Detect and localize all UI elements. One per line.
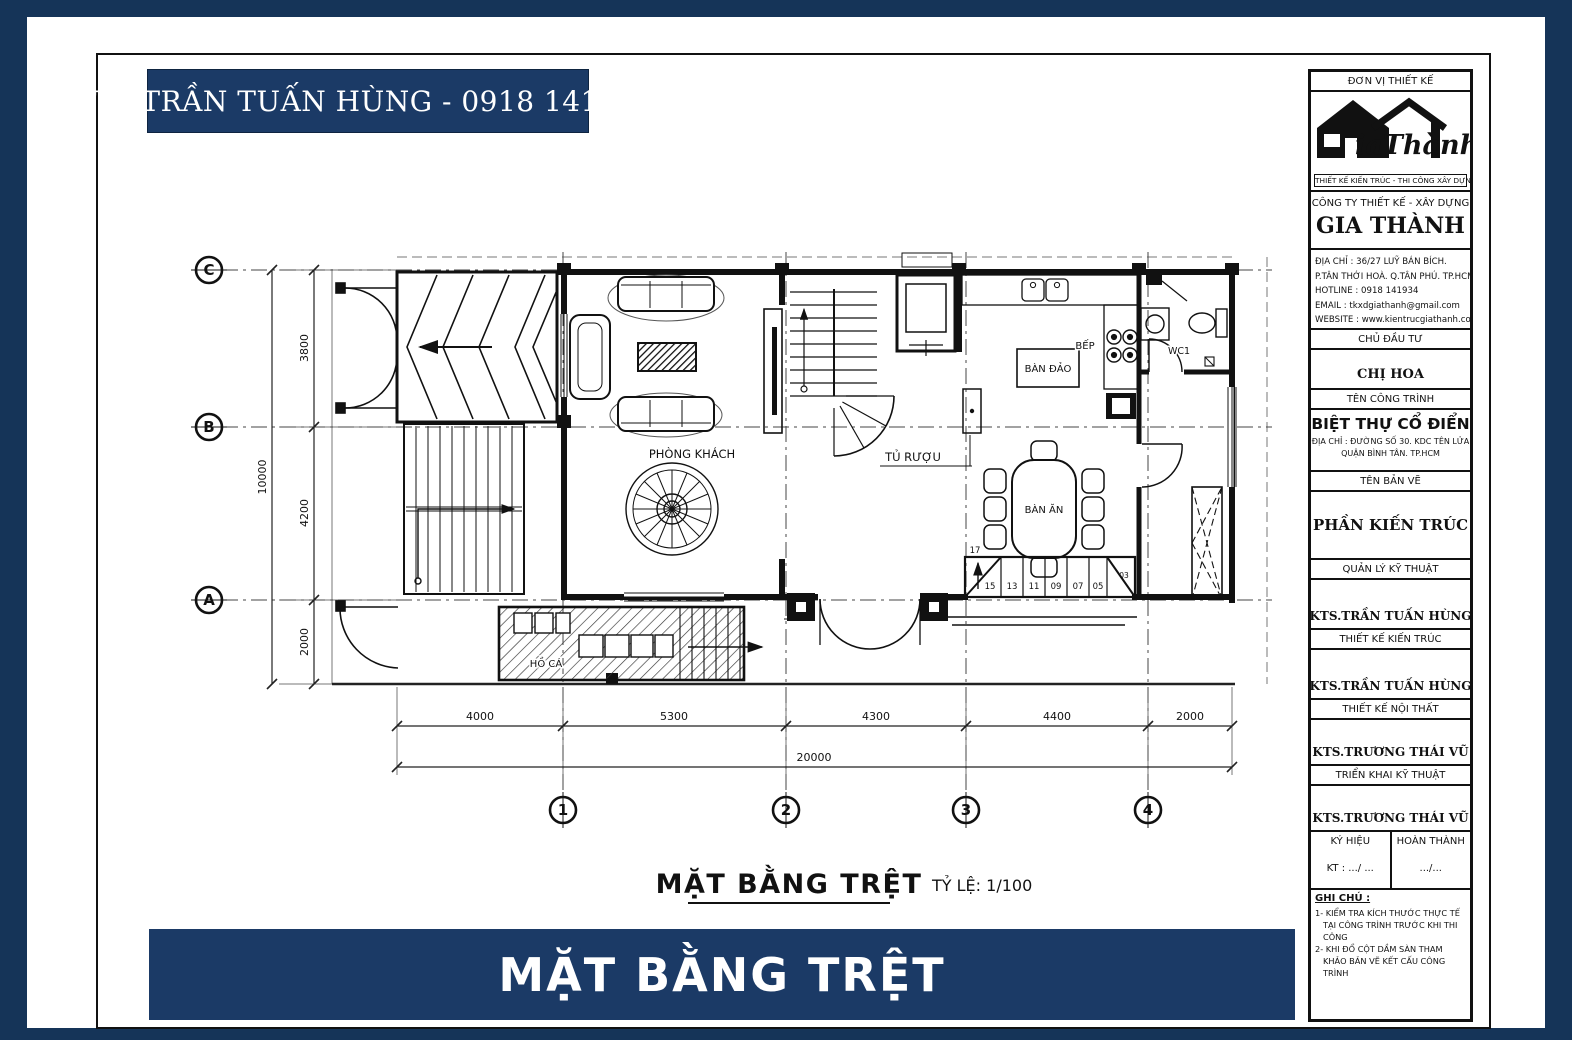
svg-text:B: B: [203, 418, 214, 436]
grid-lines: [222, 252, 1272, 797]
svg-text:1: 1: [558, 801, 568, 819]
contact-hotline: HOTLINE : 0918 141934: [1315, 284, 1466, 299]
label-bep: BẾP: [1075, 338, 1094, 352]
dim-4400: 4400: [1043, 710, 1071, 723]
owner-header: CHỦ ĐẦU TƯ: [1311, 330, 1470, 350]
plan-title: MẶT BẰNG TRỆT: [656, 864, 923, 900]
label-ban-an: BÀN ĂN: [1025, 503, 1064, 516]
architect-banner: KTS.TRẦN TUẤN HÙNG - 0918 1419 34: [147, 69, 589, 133]
garage-doors: [336, 283, 397, 413]
svg-text:A: A: [203, 591, 215, 609]
dim-4000: 4000: [466, 710, 494, 723]
yard-door: [336, 601, 398, 668]
drawing-sheet: KTS.TRẦN TUẤN HÙNG - 0918 1419 34: [27, 17, 1545, 1028]
dim-4200: 4200: [298, 499, 311, 527]
project-address-2: QUẬN BÌNH TÂN. TP.HCM: [1311, 448, 1470, 460]
svg-text:3: 3: [961, 801, 971, 819]
svg-text:09: 09: [1051, 582, 1062, 592]
sign-symbol-header: KÝ HIỆU: [1330, 836, 1370, 847]
company-logo: iaThành THIẾT KẾ KIẾN TRÚC - THI CÔNG XÂ…: [1311, 92, 1470, 192]
wc1: [1141, 274, 1227, 372]
svg-text:03: 03: [1119, 571, 1129, 580]
living-room: [570, 275, 782, 555]
gia-thanh-logo-icon: iaThành: [1311, 92, 1470, 162]
svg-text:15: 15: [985, 582, 996, 592]
plan-scale: TỶ LỆ: 1/100: [931, 875, 1032, 895]
logo-tagline: THIẾT KẾ KIẾN TRÚC - THI CÔNG XÂY DỰNG: [1314, 174, 1467, 187]
label-phong-khach: PHÒNG KHÁCH: [649, 446, 735, 461]
side-stair: [404, 424, 524, 594]
company-contact: ĐỊA CHỈ : 36/27 LUỸ BÁN BÍCH. P.TÂN THỚI…: [1311, 250, 1470, 330]
dim-10000: 10000: [256, 460, 269, 495]
project-address-1: ĐỊA CHỈ : ĐƯỜNG SỐ 30. KDC TÊN LỬA: [1311, 436, 1470, 448]
note-1: 1- KIỂM TRA KÍCH THƯỚC THỰC TẾ TẠI CÔNG …: [1315, 907, 1466, 943]
sheet-name: PHẦN KIẾN TRÚC: [1311, 492, 1470, 560]
titleblock-unit-header: ĐƠN VỊ THIẾT KẾ: [1311, 72, 1470, 92]
svg-text:2: 2: [781, 801, 791, 819]
contact-email: EMAIL : tkxdgiathanh@gmail.com: [1315, 299, 1466, 314]
garage-ramp: [397, 272, 557, 422]
svg-text:05: 05: [1093, 582, 1104, 592]
svg-text:11: 11: [1029, 582, 1040, 592]
svg-text:07: 07: [1073, 582, 1084, 592]
signature-row: KÝ HIỆU KT : .../ ... HOÀN THÀNH .../...: [1311, 832, 1470, 890]
floor-plan: 3800 4200 2000 10000 4000 5300 4300 4400…: [132, 157, 1297, 932]
elevator: [897, 253, 955, 356]
svg-text:13: 13: [1007, 582, 1018, 592]
role-name-technical-dev: KTS.TRƯƠNG THÁI VŨ: [1311, 786, 1470, 832]
architect-banner-text: KTS.TRẦN TUẤN HÙNG - 0918 1419 34: [73, 85, 664, 118]
role-header-architect: THIẾT KẾ KIẾN TRÚC: [1311, 630, 1470, 650]
label-wc1: WC1: [1168, 346, 1190, 357]
side-planter: [1192, 487, 1222, 599]
title-block: ĐƠN VỊ THIẾT KẾ iaThành THIẾT KẾ KIẾN TR…: [1308, 69, 1473, 1022]
notes-header: GHI CHÚ :: [1315, 893, 1466, 905]
sign-symbol-value: KT : .../ ...: [1327, 863, 1374, 874]
contact-website: WEBSITE : www.kientrucgiathanh.com: [1315, 313, 1466, 328]
floor-medallion: [626, 463, 718, 555]
company-section: CÔNG TY THIẾT KẾ - XÂY DỰNG GIA THÀNH: [1311, 192, 1470, 250]
sheet-header: TÊN BẢN VẼ: [1311, 472, 1470, 492]
label-ban-dao: BÀN ĐẢO: [1025, 361, 1072, 375]
svg-text:iaThành: iaThành: [1355, 130, 1470, 161]
sheet-title-text: MẶT BẰNG TRỆT: [498, 948, 945, 1002]
sheet-title-banner: MẶT BẰNG TRỆT: [149, 929, 1295, 1020]
plan-title-group: MẶT BẰNG TRỆT TỶ LỆ: 1/100: [656, 864, 1033, 903]
role-header-technical-manager: QUẢN LÝ KỸ THUẬT: [1311, 560, 1470, 580]
dim-3800: 3800: [298, 334, 311, 362]
dim-20000: 20000: [797, 751, 832, 764]
dim-2000-bottom: 2000: [1176, 710, 1204, 723]
sign-complete-header: HOÀN THÀNH: [1397, 836, 1465, 847]
main-stair: [790, 253, 981, 466]
role-name-architect: KTS.TRẦN TUẤN HÙNG: [1311, 650, 1470, 700]
dim-5300: 5300: [660, 710, 688, 723]
label-tu-ruou: TỦ RƯỢU: [884, 448, 941, 464]
contact-address-1: ĐỊA CHỈ : 36/27 LUỸ BÁN BÍCH.: [1315, 255, 1466, 270]
owner-name: CHỊ HOA: [1311, 350, 1470, 390]
kitchen: [962, 275, 1139, 419]
role-header-technical-dev: TRIỂN KHAI KỸ THUẬT: [1311, 766, 1470, 786]
role-name-technical-manager: KTS.TRẦN TUẤN HÙNG: [1311, 580, 1470, 630]
dim-4300: 4300: [862, 710, 890, 723]
front-door: [784, 593, 948, 649]
sign-complete-value: .../...: [1420, 863, 1442, 874]
note-2: 2- KHI ĐỔ CỘT DẦM SÀN THAM KHẢO BẢN VẼ K…: [1315, 943, 1466, 979]
svg-text:4: 4: [1143, 801, 1153, 819]
stove-burners: [1107, 330, 1137, 362]
company-type: CÔNG TY THIẾT KẾ - XÂY DỰNG: [1311, 198, 1470, 209]
project-name: BIỆT THỰ CỔ ĐIỂN: [1311, 415, 1470, 433]
dim-2000-left: 2000: [298, 628, 311, 656]
contact-address-2: P.TÂN THỚI HOÀ. Q.TÂN PHÚ. TP.HCM: [1315, 270, 1466, 285]
project-section: BIỆT THỰ CỔ ĐIỂN ĐỊA CHỈ : ĐƯỜNG SỐ 30. …: [1311, 410, 1470, 472]
project-header: TÊN CÔNG TRÌNH: [1311, 390, 1470, 410]
label-ho-ca: HỒ CÁ: [530, 656, 563, 670]
svg-text:17: 17: [970, 546, 981, 556]
svg-text:C: C: [203, 261, 214, 279]
role-header-interior: THIẾT KẾ NỘI THẤT: [1311, 700, 1470, 720]
company-name: GIA THÀNH: [1311, 213, 1470, 239]
role-name-interior: KTS.TRƯƠNG THÁI VŨ: [1311, 720, 1470, 766]
notes-section: GHI CHÚ : 1- KIỂM TRA KÍCH THƯỚC THỰC TẾ…: [1311, 890, 1470, 979]
